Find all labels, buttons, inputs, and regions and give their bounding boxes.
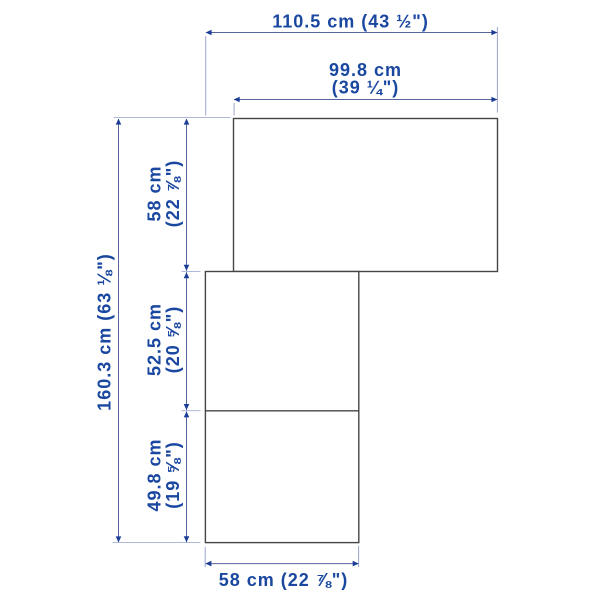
- svg-text:52.5 cm(20 ⅝"): 52.5 cm(20 ⅝"): [145, 303, 184, 376]
- svg-text:58 cm(22 ⅞"): 58 cm(22 ⅞"): [145, 160, 184, 228]
- svg-text:110.5 cm (43 ½"): 110.5 cm (43 ½"): [272, 12, 429, 32]
- svg-text:(39 ¼"): (39 ¼"): [332, 78, 400, 98]
- svg-text:160.3 cm (63 ⅛"): 160.3 cm (63 ⅛"): [95, 253, 115, 411]
- svg-text:49.8 cm(19 ⅝"): 49.8 cm(19 ⅝"): [145, 438, 184, 511]
- svg-text:58 cm (22 ⅞"): 58 cm (22 ⅞"): [219, 570, 349, 590]
